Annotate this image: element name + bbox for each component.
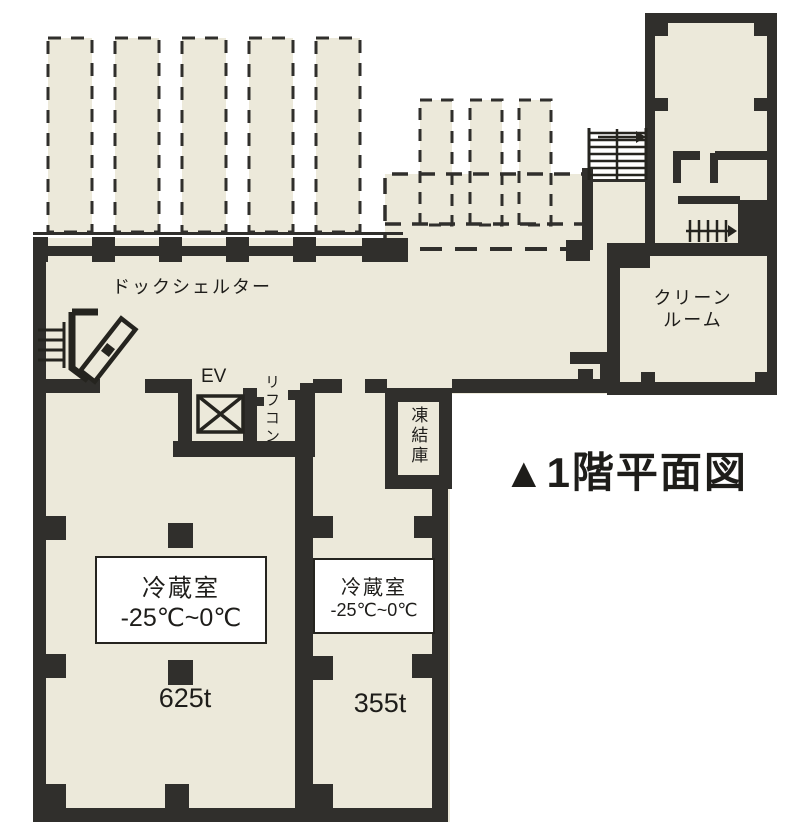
cold-room-2-tag: 冷蔵室 -25℃~0℃ xyxy=(313,558,435,634)
cold-room-2-capacity: 355t xyxy=(335,687,425,719)
floor-plan-first-floor: ドックシェルター クリーン ルーム EV リフコン 凍結庫 冷蔵室 -25℃~0… xyxy=(0,0,801,827)
truck-bays-large xyxy=(48,38,360,232)
page-title: ▲1階平面図 xyxy=(503,448,748,498)
cold-room-2-temp: -25℃~0℃ xyxy=(331,600,418,621)
truck-bays-small xyxy=(420,100,551,225)
annex-stairs xyxy=(589,128,646,180)
clean-room-label: クリーン ルーム xyxy=(620,288,766,331)
clean-room-label-line2: ルーム xyxy=(620,310,766,332)
lift-conveyor-label: リフコン xyxy=(262,374,280,464)
cold-room-1-temp: -25℃~0℃ xyxy=(121,603,242,633)
cold-room-1-tag: 冷蔵室 -25℃~0℃ xyxy=(95,556,267,644)
elevator-label: EV xyxy=(201,366,226,389)
cold-room-2-name: 冷蔵室 xyxy=(341,571,407,600)
clean-room-label-line1: クリーン xyxy=(620,288,766,310)
dock-shelter-label: ドックシェルター xyxy=(112,277,272,299)
cold-room-1-capacity: 625t xyxy=(140,682,230,714)
cold-room-1-name: 冷蔵室 xyxy=(142,568,220,603)
freezer-label: 凍結庫 xyxy=(407,406,427,478)
